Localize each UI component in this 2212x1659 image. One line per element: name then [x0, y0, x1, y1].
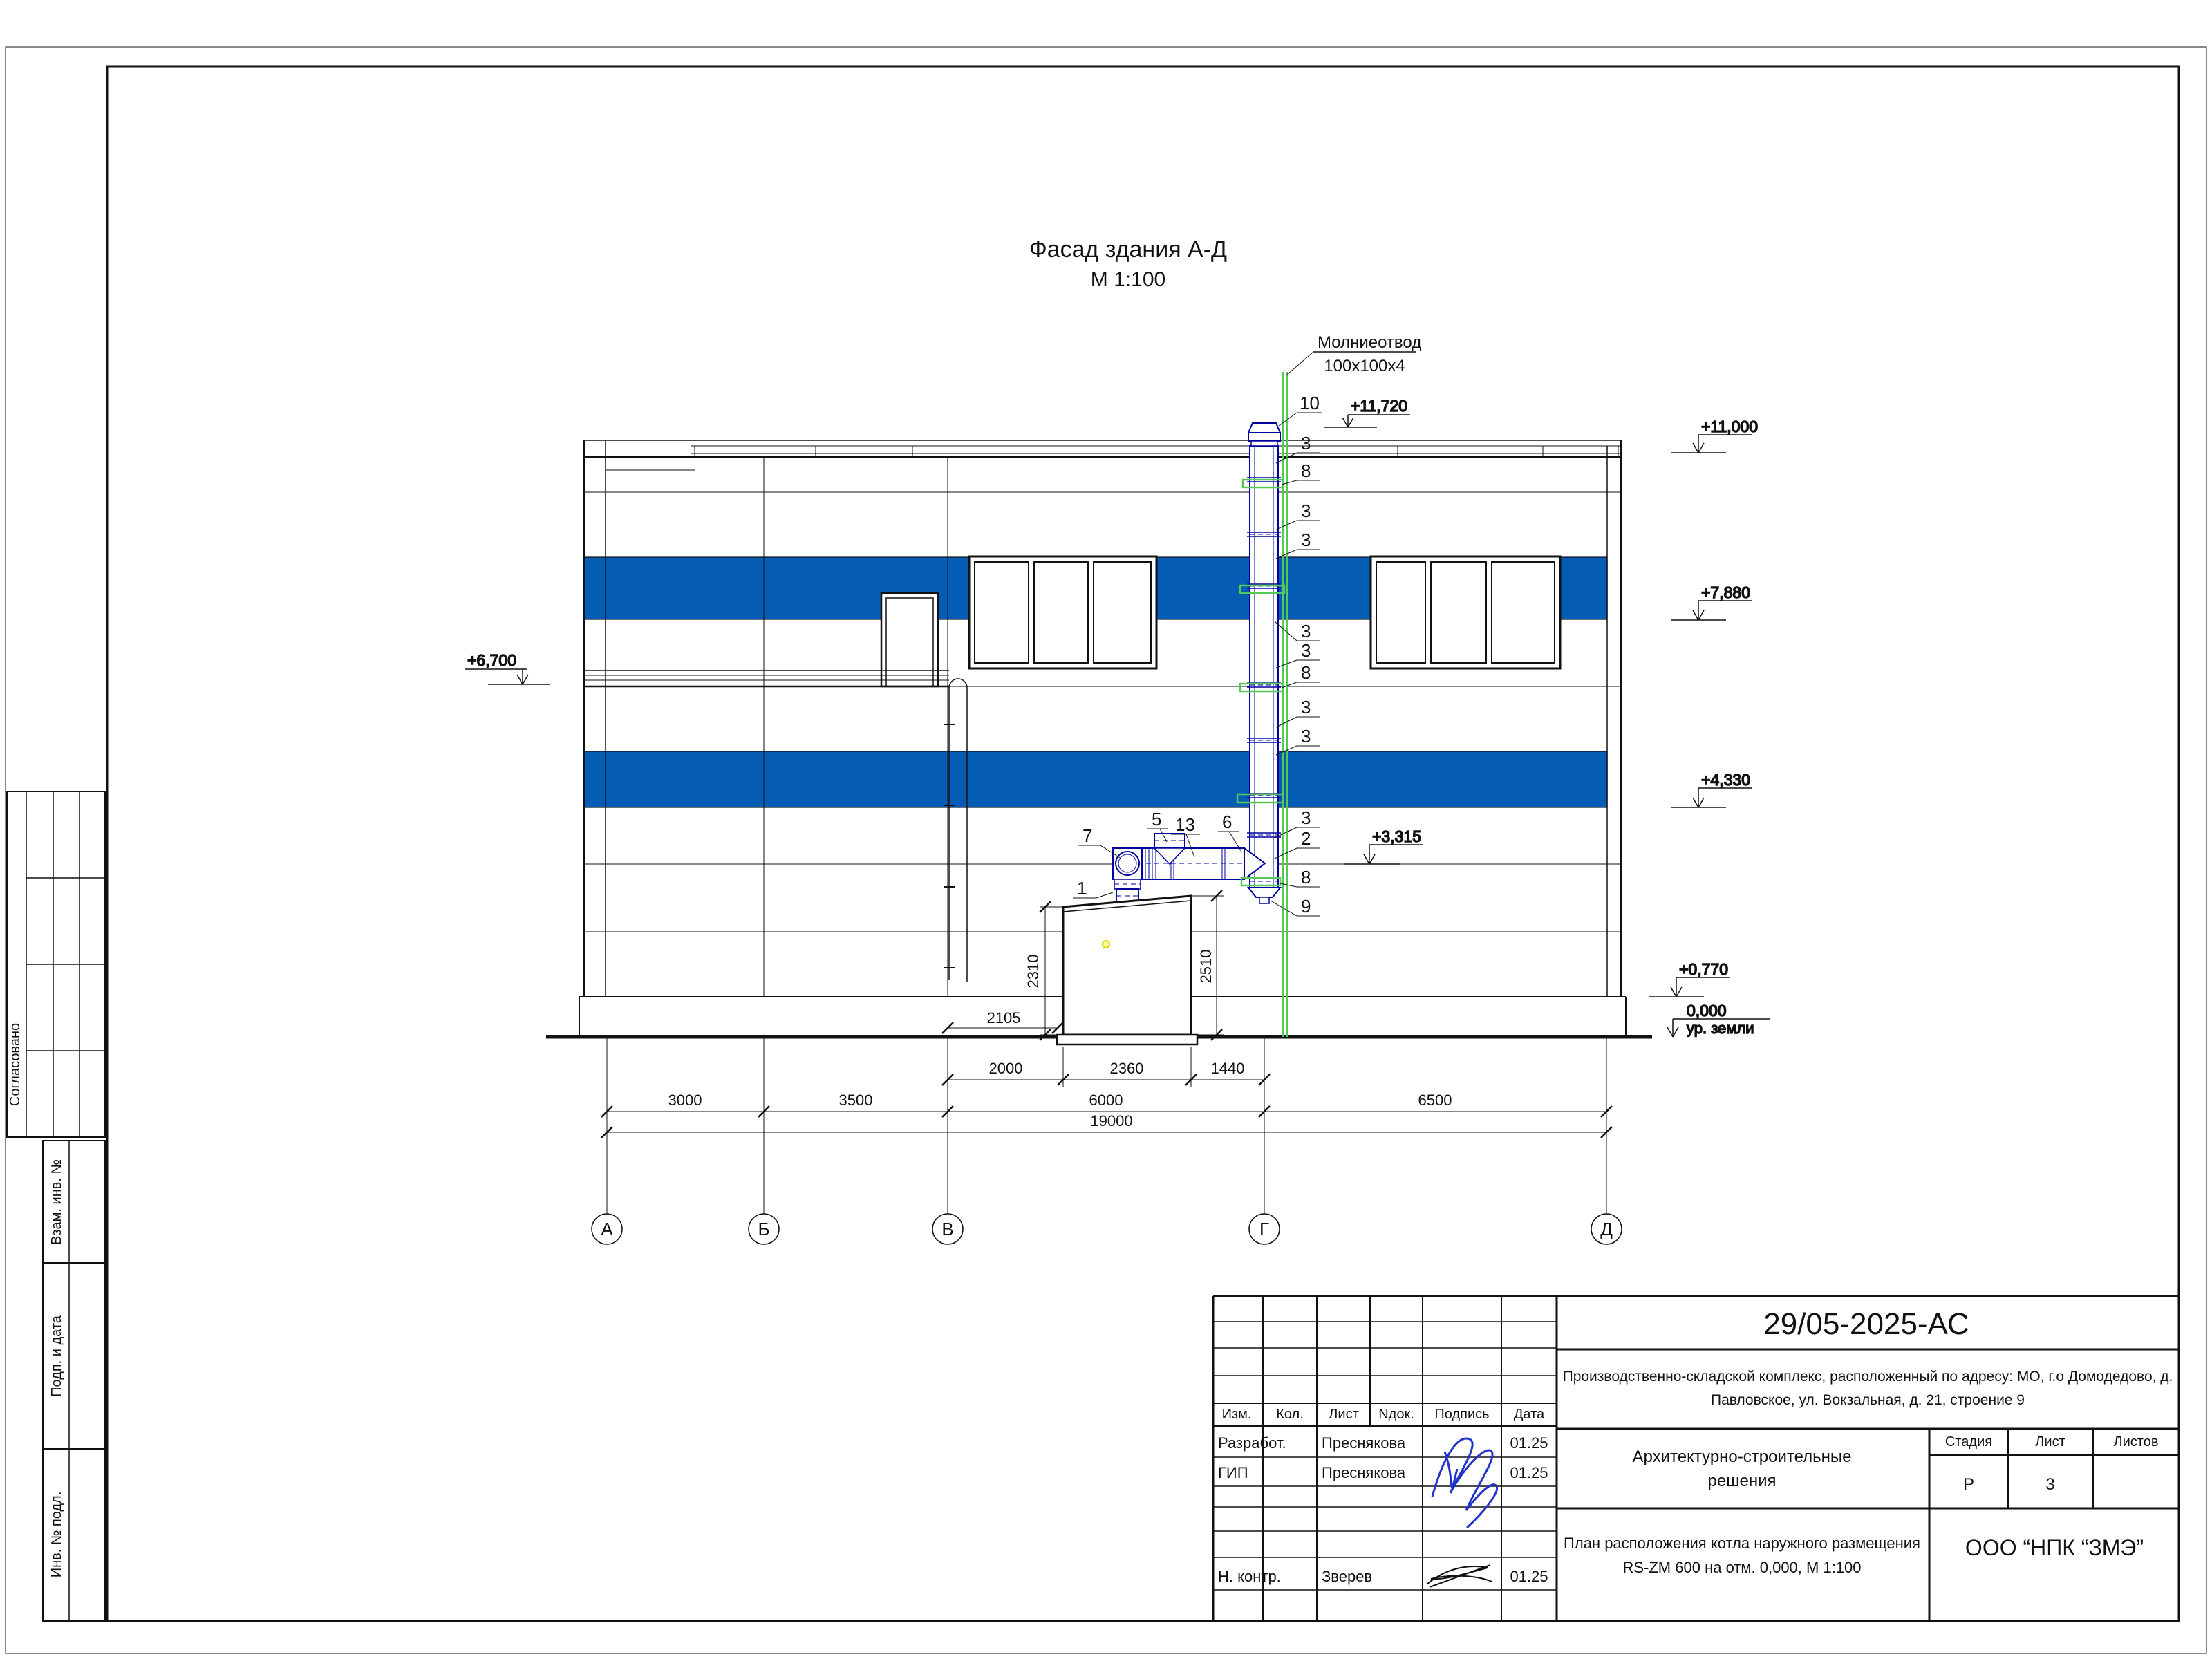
ground-level-label: ур. земли [1687, 1020, 1754, 1037]
th-ndok: Nдок. [1378, 1407, 1414, 1422]
svg-text:3: 3 [1301, 640, 1311, 661]
th-podpis: Подпись [1434, 1407, 1489, 1422]
boiler-marker-dot [1103, 941, 1109, 948]
svg-text:8: 8 [1301, 662, 1311, 683]
th-kol: Кол. [1276, 1407, 1304, 1422]
svg-text:2: 2 [1301, 828, 1311, 849]
elev-zero: 0,000 ур. земли [1667, 1002, 1770, 1037]
svg-text:3: 3 [1301, 807, 1311, 828]
blue-band-lower [584, 751, 1607, 807]
sheet-title-1: План расположения котла наружного размещ… [1564, 1535, 1920, 1552]
elev-parapet: +11,000 [1671, 418, 1758, 453]
svg-text:2000: 2000 [989, 1060, 1023, 1077]
axis-g: Г [1259, 1219, 1269, 1239]
section-title-2: решения [1708, 1472, 1777, 1490]
svg-text:2310: 2310 [1024, 955, 1042, 988]
svg-text:2510: 2510 [1197, 950, 1215, 984]
elev-flue: +3,315 [1344, 827, 1423, 864]
stamp-soglasovano: Согласовано [8, 1023, 23, 1106]
svg-text:6000: 6000 [1089, 1091, 1123, 1109]
svg-text:+6,700: +6,700 [467, 651, 516, 669]
list-value: 3 [2045, 1475, 2054, 1494]
chimney [1247, 423, 1281, 903]
left-margin-stamps: Согласовано Взам. инв. № Подп. и дата Ин… [7, 791, 105, 1621]
axis-b: Б [758, 1219, 769, 1239]
svg-text:+4,330: +4,330 [1701, 771, 1750, 789]
svg-text:1: 1 [1077, 878, 1087, 899]
sheet-title-2: RS-ZM 600 на отм. 0,000, М 1:100 [1622, 1559, 1861, 1576]
address-1: Производственно-складской комплекс, расп… [1563, 1369, 2173, 1385]
stamp-inv-podl: Инв. № подл. [49, 1492, 64, 1578]
svg-text:+3,315: +3,315 [1372, 827, 1421, 845]
th-data: Дата [1514, 1407, 1545, 1422]
svg-text:3: 3 [1301, 529, 1311, 550]
chimney-drain [1259, 897, 1269, 903]
elev-plinth: +0,770 [1649, 960, 1730, 997]
svg-text:3: 3 [1301, 621, 1311, 641]
svg-text:6500: 6500 [1418, 1091, 1452, 1109]
chimney-bottom-cone [1248, 888, 1280, 897]
stamp-vzam-inv: Взам. инв. № [49, 1159, 64, 1245]
row-name-1: Преснякова [1322, 1464, 1406, 1481]
row-role-1: ГИП [1218, 1464, 1248, 1481]
boiler-pad [1057, 1035, 1197, 1044]
svg-text:3: 3 [1301, 500, 1311, 521]
signature-black [1427, 1565, 1492, 1587]
th-listov: Листов [2114, 1434, 2159, 1450]
svg-text:3: 3 [1301, 697, 1311, 718]
row-name-0: Преснякова [1322, 1434, 1406, 1452]
row-name-2: Зверев [1322, 1568, 1372, 1585]
drawing-title: Фасад здания А-Д [1029, 236, 1227, 263]
signature-blue [1432, 1438, 1497, 1528]
row-date-0: 01.25 [1510, 1434, 1548, 1452]
address-2: Павловское, ул. Вокзальная, д. 21, строе… [1711, 1392, 2025, 1408]
svg-text:3500: 3500 [839, 1091, 873, 1109]
row-date-1: 01.25 [1510, 1464, 1548, 1481]
axis-bubbles: А Б В Г Д [592, 1214, 1622, 1244]
svg-text:8: 8 [1301, 460, 1311, 481]
lightning-label-2: 100х100х4 [1324, 357, 1405, 375]
title-block: Изм. Кол. Лист Nдок. Подпись Дата Разраб… [1213, 1296, 2179, 1621]
section-title-1: Архитектурно-строительные [1633, 1447, 1852, 1466]
facade-drawing-canvas: Согласовано Взам. инв. № Подп. и дата Ин… [0, 0, 2212, 1659]
company-name: ООО “НПК “ЗМЭ” [1965, 1535, 2144, 1560]
axis-v: В [941, 1219, 953, 1239]
boiler-unit [1057, 896, 1197, 1044]
axis-a: А [601, 1219, 613, 1239]
svg-text:6: 6 [1222, 812, 1232, 832]
svg-text:9: 9 [1301, 896, 1311, 917]
svg-text:13: 13 [1175, 814, 1195, 835]
elev-band2: +4,330 [1671, 771, 1752, 807]
svg-text:10: 10 [1300, 393, 1320, 413]
svg-text:3000: 3000 [668, 1091, 702, 1109]
svg-text:+7,880: +7,880 [1701, 583, 1750, 601]
drawing-sheet: Согласовано Взам. инв. № Подп. и дата Ин… [0, 0, 2212, 1659]
svg-text:8: 8 [1301, 867, 1311, 888]
window-group-left [969, 556, 1156, 668]
svg-text:+11,720: +11,720 [1351, 397, 1407, 415]
row-date-2: 01.25 [1510, 1568, 1548, 1585]
svg-text:5: 5 [1152, 809, 1161, 829]
svg-text:3: 3 [1301, 433, 1311, 453]
elev-canopy: +6,700 [465, 651, 550, 684]
elev-band1: +7,880 [1671, 583, 1752, 620]
lightning-rod-label: Молниеотвод 100х100х4 [1287, 333, 1421, 375]
flue-assembly [1113, 834, 1265, 903]
stadia-value: Р [1963, 1475, 1974, 1494]
row-role-2: Н. контр. [1218, 1568, 1281, 1585]
svg-text:1440: 1440 [1211, 1060, 1245, 1077]
th-stadia: Стадия [1945, 1434, 1992, 1450]
th-list: Лист [1329, 1407, 1358, 1422]
svg-text:3: 3 [1301, 726, 1311, 747]
sheet-inner-frame [107, 66, 2179, 1621]
th-list2: Лист [2035, 1434, 2065, 1450]
th-izm: Изм. [1222, 1407, 1252, 1422]
door [881, 593, 938, 686]
stamp-podp-data: Подп. и дата [49, 1315, 64, 1397]
svg-text:0,000: 0,000 [1687, 1002, 1727, 1020]
elev-rod-top: +11,720 [1324, 397, 1410, 427]
doc-number: 29/05-2025-АС [1763, 1307, 1969, 1341]
svg-text:7: 7 [1082, 825, 1092, 846]
svg-text:+11,000: +11,000 [1701, 418, 1758, 435]
row-role-0: Разработ. [1218, 1434, 1286, 1452]
svg-text:2105: 2105 [987, 1009, 1021, 1027]
axis-d: Д [1600, 1219, 1613, 1239]
svg-text:19000: 19000 [1090, 1112, 1132, 1130]
lightning-label-1: Молниеотвод [1318, 333, 1421, 352]
svg-text:2360: 2360 [1110, 1060, 1144, 1077]
svg-text:+0,770: +0,770 [1679, 960, 1728, 978]
window-group-right [1371, 556, 1560, 668]
chimney-cap [1248, 423, 1280, 433]
drawing-scale: М 1:100 [1091, 268, 1165, 291]
